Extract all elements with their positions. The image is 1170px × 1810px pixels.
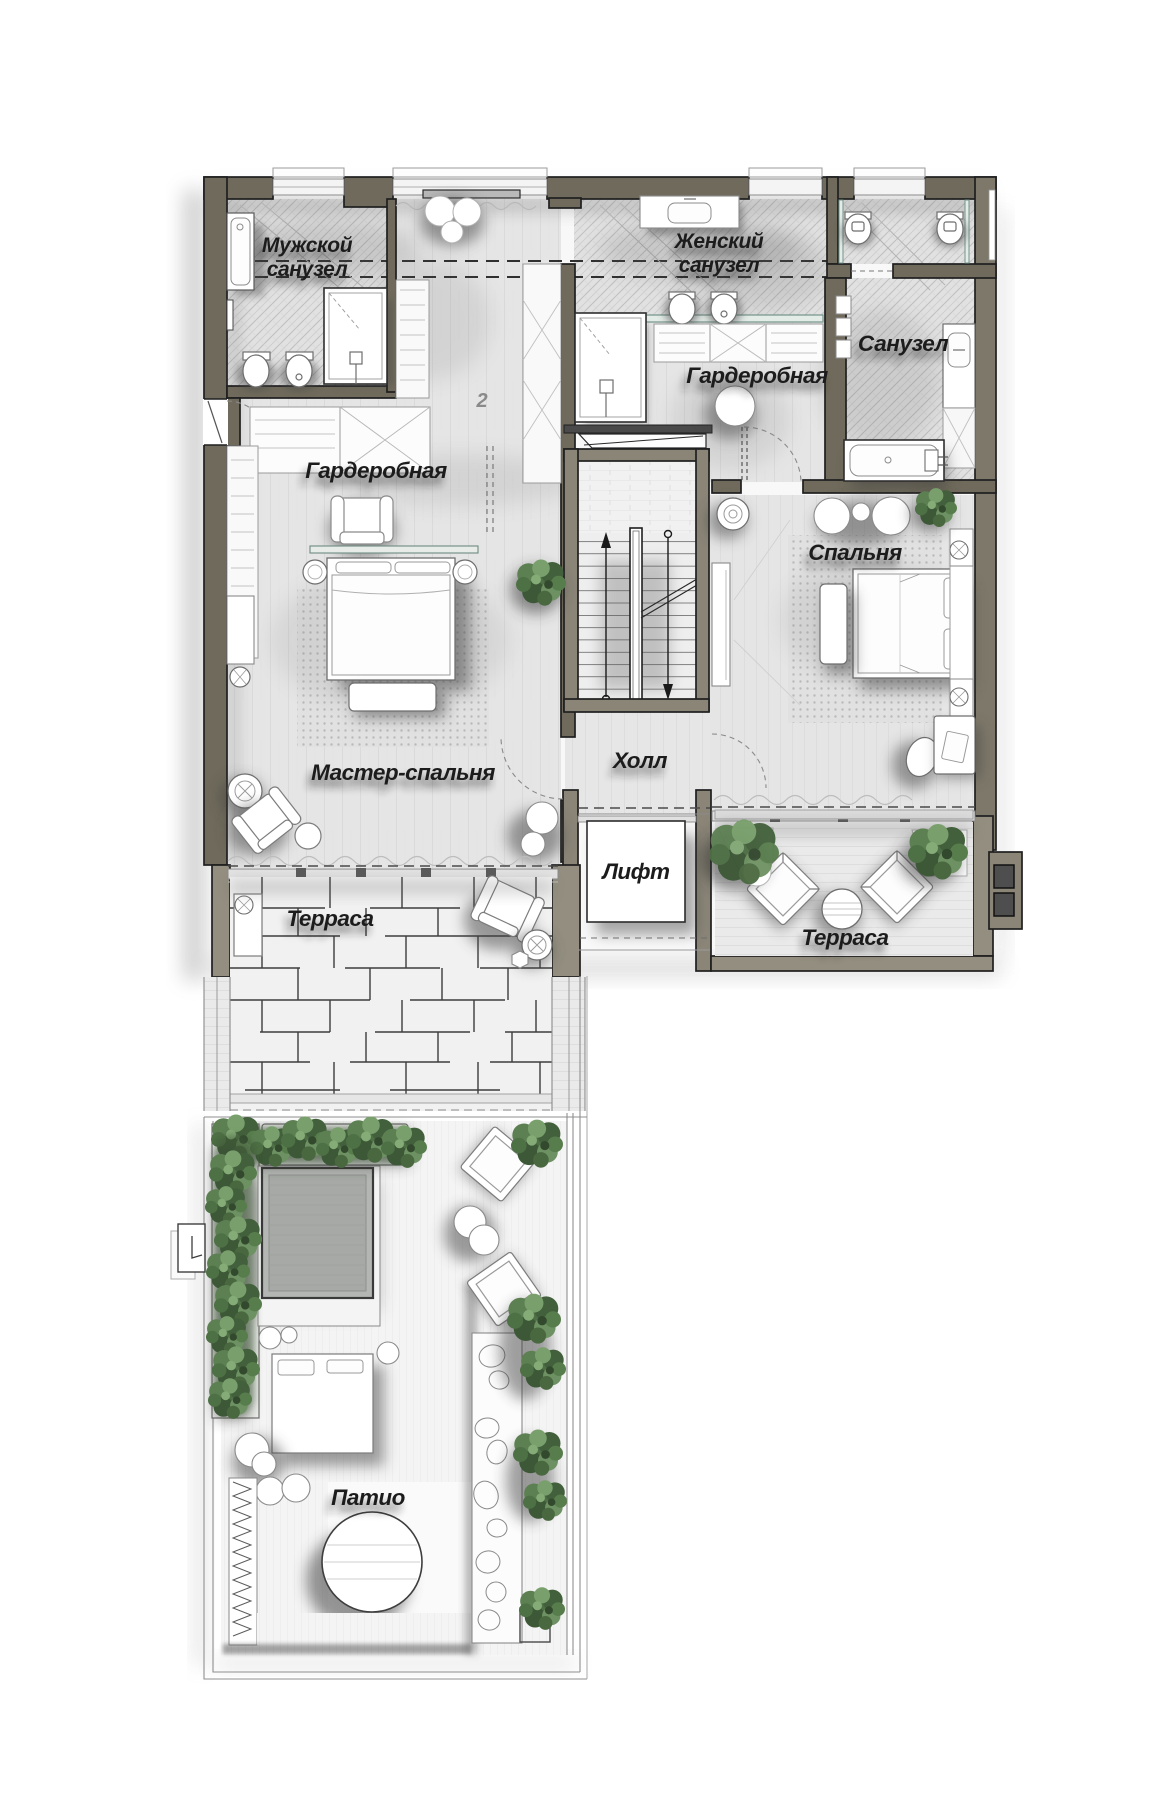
svg-text:Патио: Патио (331, 1485, 405, 1510)
svg-text:санузел: санузел (267, 258, 348, 281)
svg-text:Холл: Холл (611, 748, 667, 773)
svg-text:санузел: санузел (679, 254, 760, 277)
svg-text:Женский: Женский (674, 230, 764, 253)
svg-text:Мастер-спальня: Мастер-спальня (311, 760, 495, 785)
svg-text:Мужской: Мужской (262, 234, 353, 257)
svg-text:Лифт: Лифт (600, 859, 670, 884)
svg-text:Гардеробная: Гардеробная (686, 363, 828, 388)
svg-text:Санузел: Санузел (858, 331, 949, 356)
svg-text:Гардеробная: Гардеробная (305, 458, 447, 483)
svg-text:2: 2 (475, 390, 487, 412)
svg-text:Спальня: Спальня (808, 540, 902, 565)
svg-text:Терраса: Терраса (287, 906, 374, 931)
svg-text:Терраса: Терраса (802, 925, 889, 950)
